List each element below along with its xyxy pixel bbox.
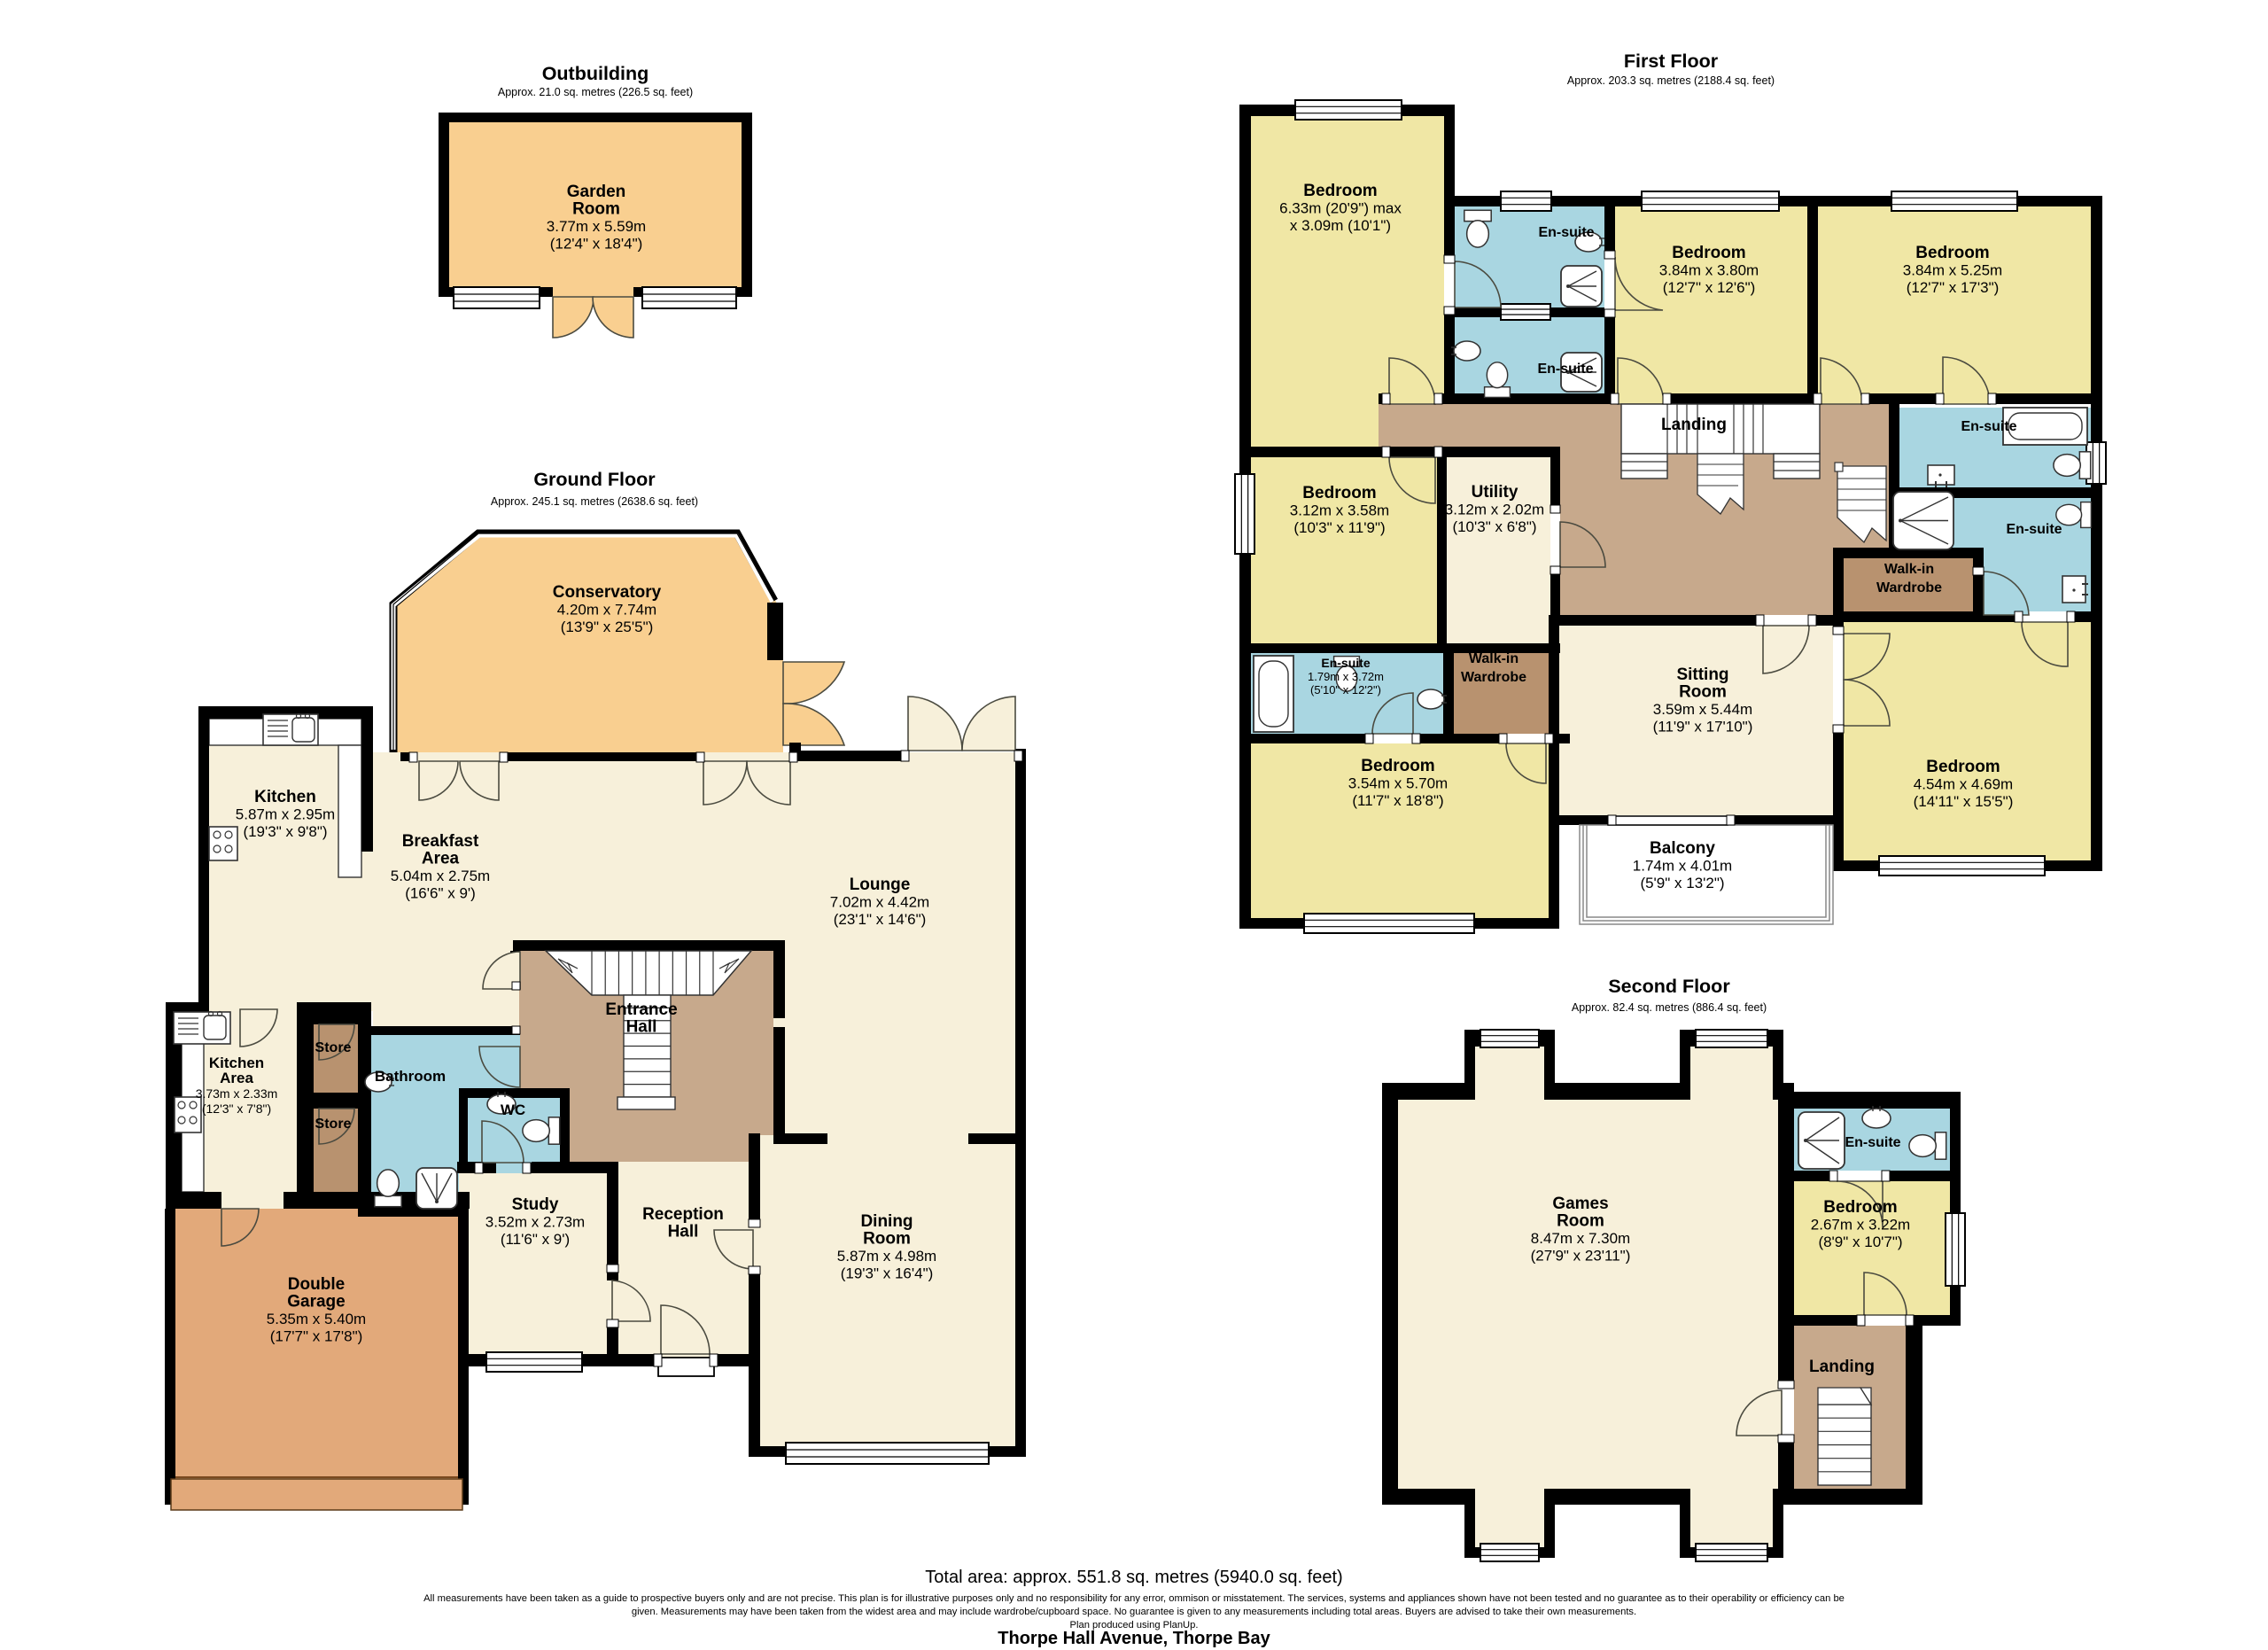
svg-text:Sitting: Sitting (1676, 665, 1728, 684)
svg-text:5.87m x 4.98m: 5.87m x 4.98m (837, 1248, 936, 1265)
svg-text:3.52m x 2.73m: 3.52m x 2.73m (485, 1214, 585, 1231)
svg-text:Walk-in: Walk-in (1884, 562, 1934, 577)
svg-text:Balcony: Balcony (1650, 839, 1715, 858)
svg-text:Double: Double (288, 1275, 345, 1294)
svg-text:x 3.09m (10'1"): x 3.09m (10'1") (1290, 217, 1391, 234)
svg-text:(19'3" x 9'8"): (19'3" x 9'8") (243, 823, 327, 840)
svg-text:(27'9" x 23'11"): (27'9" x 23'11") (1531, 1248, 1631, 1265)
svg-text:First Floor: First Floor (1624, 51, 1719, 72)
svg-text:Conservatory: Conservatory (553, 583, 662, 602)
svg-text:(11'9" x 17'10"): (11'9" x 17'10") (1653, 719, 1753, 735)
svg-text:Study: Study (512, 1195, 559, 1214)
svg-text:(12'3" x 7'8"): (12'3" x 7'8") (202, 1101, 271, 1116)
svg-text:8.47m x 7.30m: 8.47m x 7.30m (1531, 1230, 1630, 1247)
svg-text:Dining: Dining (860, 1212, 913, 1231)
svg-text:Garden: Garden (567, 183, 626, 201)
svg-text:Total area: approx. 551.8 sq.: Total area: approx. 551.8 sq. metres (59… (925, 1568, 1342, 1587)
svg-text:3.73m x 2.33m: 3.73m x 2.33m (196, 1086, 278, 1101)
svg-text:Room: Room (1679, 683, 1727, 702)
svg-text:Bedroom: Bedroom (1302, 484, 1376, 502)
svg-text:2.67m x 3.22m: 2.67m x 3.22m (1811, 1217, 1910, 1234)
svg-text:Room: Room (572, 200, 620, 219)
svg-text:En-suite: En-suite (1321, 656, 1370, 670)
svg-text:En-suite: En-suite (2006, 522, 2062, 537)
svg-text:Bedroom: Bedroom (1926, 758, 2000, 776)
svg-text:Bedroom: Bedroom (1361, 757, 1434, 775)
svg-text:Approx. 203.3 sq. metres (2188: Approx. 203.3 sq. metres (2188.4 sq. fee… (1567, 74, 1775, 87)
svg-text:(19'3" x 16'4"): (19'3" x 16'4") (841, 1265, 934, 1282)
svg-text:Room: Room (863, 1230, 911, 1249)
svg-text:(12'7" x 17'3"): (12'7" x 17'3") (1907, 279, 2000, 296)
svg-text:Bedroom: Bedroom (1303, 182, 1377, 200)
svg-text:Store: Store (315, 1040, 352, 1055)
svg-text:5.87m x 2.95m: 5.87m x 2.95m (236, 806, 335, 823)
svg-text:En-suite: En-suite (1538, 225, 1594, 240)
svg-text:En-suite: En-suite (1961, 419, 2016, 434)
svg-text:(5'9" x 13'2"): (5'9" x 13'2") (1640, 875, 1724, 891)
svg-text:Ground Floor: Ground Floor (533, 469, 656, 490)
svg-text:(10'3" x 11'9"): (10'3" x 11'9") (1293, 519, 1385, 536)
svg-text:Room: Room (1557, 1212, 1604, 1231)
svg-text:Wardrobe: Wardrobe (1876, 580, 1942, 595)
svg-text:Lounge: Lounge (850, 876, 911, 894)
svg-text:Store: Store (315, 1117, 352, 1132)
svg-text:1.79m x 3.72m: 1.79m x 3.72m (1308, 670, 1384, 683)
svg-text:3.84m x 3.80m: 3.84m x 3.80m (1659, 262, 1759, 279)
svg-text:3.59m x 5.44m: 3.59m x 5.44m (1653, 701, 1752, 718)
svg-text:(11'7" x 18'8"): (11'7" x 18'8") (1352, 792, 1443, 809)
svg-text:Second Floor: Second Floor (1608, 976, 1730, 997)
svg-text:Bedroom: Bedroom (1672, 244, 1745, 262)
svg-text:3.54m x 5.70m: 3.54m x 5.70m (1348, 775, 1448, 792)
svg-text:3.84m x 5.25m: 3.84m x 5.25m (1903, 262, 2002, 279)
svg-text:7.02m x 4.42m: 7.02m x 4.42m (830, 894, 929, 911)
svg-text:All measurements have been tak: All measurements have been taken as a gu… (423, 1593, 1845, 1604)
svg-text:(14'11" x 15'5"): (14'11" x 15'5") (1914, 793, 2014, 810)
svg-text:Outbuilding: Outbuilding (542, 63, 649, 84)
svg-text:Walk-in: Walk-in (1469, 651, 1518, 666)
svg-text:1.74m x 4.01m: 1.74m x 4.01m (1633, 858, 1732, 875)
svg-text:Area: Area (422, 850, 460, 868)
svg-text:(17'7" x 17'8"): (17'7" x 17'8") (270, 1328, 363, 1345)
svg-text:Area: Area (220, 1070, 253, 1086)
svg-text:(11'6" x 9'): (11'6" x 9') (501, 1231, 570, 1248)
svg-text:Bedroom: Bedroom (1823, 1198, 1897, 1217)
svg-text:En-suite: En-suite (1845, 1135, 1900, 1150)
svg-text:Kitchen: Kitchen (254, 788, 316, 806)
svg-text:Entrance: Entrance (605, 1000, 677, 1019)
svg-text:Utility: Utility (1472, 483, 1518, 502)
svg-text:(5'10" x 12'2"): (5'10" x 12'2") (1310, 683, 1381, 697)
svg-text:(8'9" x 10'7"): (8'9" x 10'7") (1818, 1234, 1902, 1250)
svg-text:Thorpe Hall Avenue, Thorpe Bay: Thorpe Hall Avenue, Thorpe Bay (998, 1629, 1270, 1648)
svg-text:Landing: Landing (1661, 416, 1727, 434)
svg-text:(23'1" x 14'6"): (23'1" x 14'6") (834, 911, 927, 928)
svg-text:Garage: Garage (287, 1293, 345, 1311)
svg-text:4.54m x 4.69m: 4.54m x 4.69m (1914, 776, 2013, 793)
svg-text:Reception: Reception (642, 1205, 724, 1224)
svg-text:3.12m x 2.02m: 3.12m x 2.02m (1445, 502, 1544, 518)
svg-text:Approx. 245.1 sq. metres (2638: Approx. 245.1 sq. metres (2638.6 sq. fee… (491, 495, 698, 508)
svg-text:Wardrobe: Wardrobe (1461, 670, 1526, 685)
svg-text:3.12m x 3.58m: 3.12m x 3.58m (1290, 502, 1389, 519)
svg-text:Bedroom: Bedroom (1915, 244, 1989, 262)
svg-text:3.77m x 5.59m: 3.77m x 5.59m (547, 218, 646, 235)
svg-text:4.20m x 7.74m: 4.20m x 7.74m (557, 602, 656, 619)
svg-text:Games: Games (1552, 1195, 1608, 1213)
svg-text:(16'6" x 9'): (16'6" x 9') (405, 885, 476, 902)
svg-text:Approx. 82.4 sq. metres (886.4: Approx. 82.4 sq. metres (886.4 sq. feet) (1572, 1001, 1767, 1014)
svg-text:Hall: Hall (668, 1223, 699, 1241)
svg-text:En-suite: En-suite (1537, 362, 1593, 377)
svg-text:(12'7" x 12'6"): (12'7" x 12'6") (1663, 279, 1756, 296)
svg-text:WC: WC (501, 1101, 525, 1118)
svg-text:(12'4" x 18'4"): (12'4" x 18'4") (550, 236, 643, 253)
svg-text:given. Measurements may have b: given. Measurements may have been taken … (632, 1607, 1636, 1617)
svg-text:5.04m x 2.75m: 5.04m x 2.75m (391, 868, 490, 884)
svg-text:Bathroom: Bathroom (375, 1068, 446, 1085)
svg-text:(10'3" x 6'8"): (10'3" x 6'8") (1452, 518, 1536, 535)
svg-text:(13'9" x 25'5"): (13'9" x 25'5") (561, 619, 654, 635)
svg-text:Breakfast: Breakfast (402, 832, 479, 851)
svg-text:5.35m x 5.40m: 5.35m x 5.40m (267, 1311, 366, 1327)
svg-text:Hall: Hall (626, 1018, 657, 1037)
svg-text:6.33m (20'9") max: 6.33m (20'9") max (1279, 200, 1402, 217)
svg-text:Landing: Landing (1809, 1358, 1875, 1376)
svg-text:Approx. 21.0 sq. metres (226.5: Approx. 21.0 sq. metres (226.5 sq. feet) (498, 86, 693, 98)
